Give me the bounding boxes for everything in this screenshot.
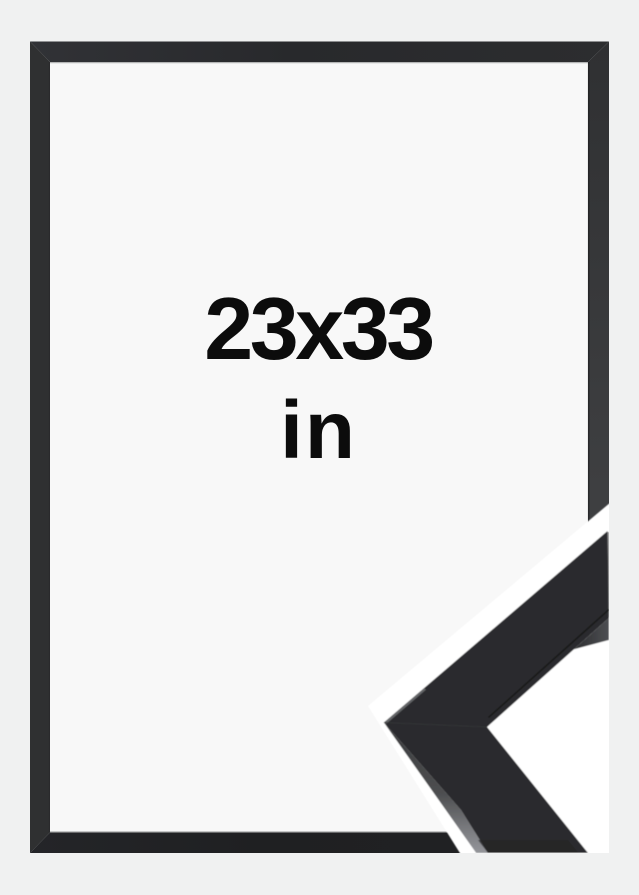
svg-text:in: in bbox=[280, 385, 357, 476]
svg-text:23x33: 23x33 bbox=[204, 279, 432, 378]
